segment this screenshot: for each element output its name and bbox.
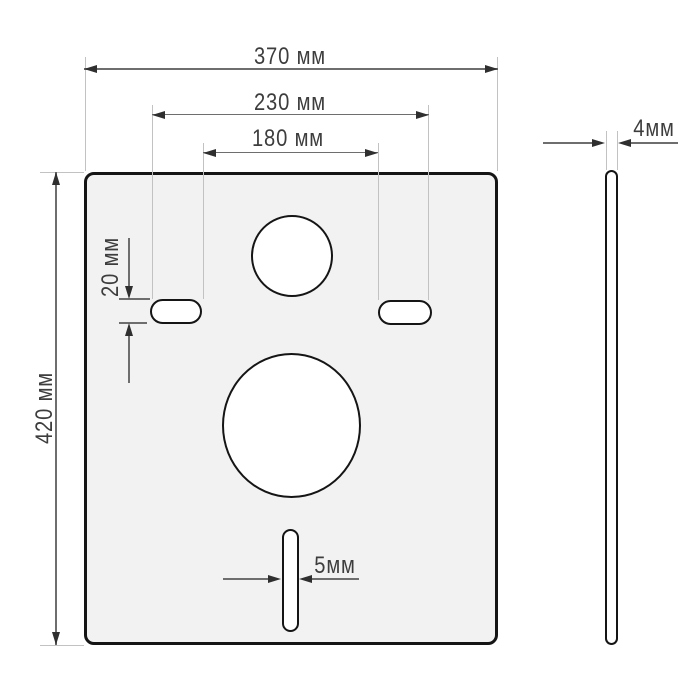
left-mount-slot (150, 299, 202, 324)
extension-line (152, 105, 153, 299)
dim-bottom-slot-width-label: 5мм (310, 554, 360, 578)
dim-arrow-left (84, 65, 97, 73)
extension-line (617, 131, 618, 170)
dim-arrow-left (152, 111, 165, 119)
dim-arrow-up (52, 172, 60, 185)
dim-arrow-right (268, 575, 281, 583)
dimension-line (543, 142, 597, 144)
dim-arrow-left (203, 149, 216, 157)
extension-line (85, 57, 86, 171)
dimension-line (128, 238, 130, 290)
extension-line (497, 57, 498, 171)
drawing-canvas: 370 мм 230 мм 180 мм 420 мм 20 мм (0, 0, 700, 700)
extension-line (40, 172, 84, 173)
extension-tick (119, 322, 147, 323)
dim-plate-width-label: 370 мм (248, 45, 332, 69)
dim-mount-slot-height-label: 20 мм (99, 233, 123, 300)
large-circle-hole (222, 353, 361, 498)
extension-line (203, 143, 204, 299)
extension-line (428, 105, 429, 300)
dim-arrow-right (485, 65, 498, 73)
dimension-line (627, 142, 678, 144)
bottom-vertical-slot (282, 529, 299, 632)
extension-line (40, 645, 84, 646)
dim-arrow-down (125, 286, 133, 299)
dim-slots-outer-span-label: 230 мм (248, 91, 332, 115)
extension-tick (119, 298, 150, 299)
dim-arrow-right (592, 139, 605, 147)
dimension-line (128, 334, 130, 383)
dim-arrow-up (125, 323, 133, 336)
dim-arrow-right (416, 111, 429, 119)
dim-arrow-down (52, 632, 60, 645)
gasket-side-view (605, 170, 618, 645)
dim-plate-height-label: 420 мм (33, 362, 57, 454)
dimension-line (223, 578, 273, 580)
extension-line (606, 131, 607, 170)
dim-arrow-right (365, 149, 378, 157)
dim-slots-inner-span-label: 180 мм (246, 127, 330, 151)
extension-line (378, 143, 379, 300)
upper-circle-hole (251, 215, 333, 297)
dim-plate-thickness-label: 4мм (627, 117, 681, 141)
right-mount-slot (378, 300, 432, 325)
